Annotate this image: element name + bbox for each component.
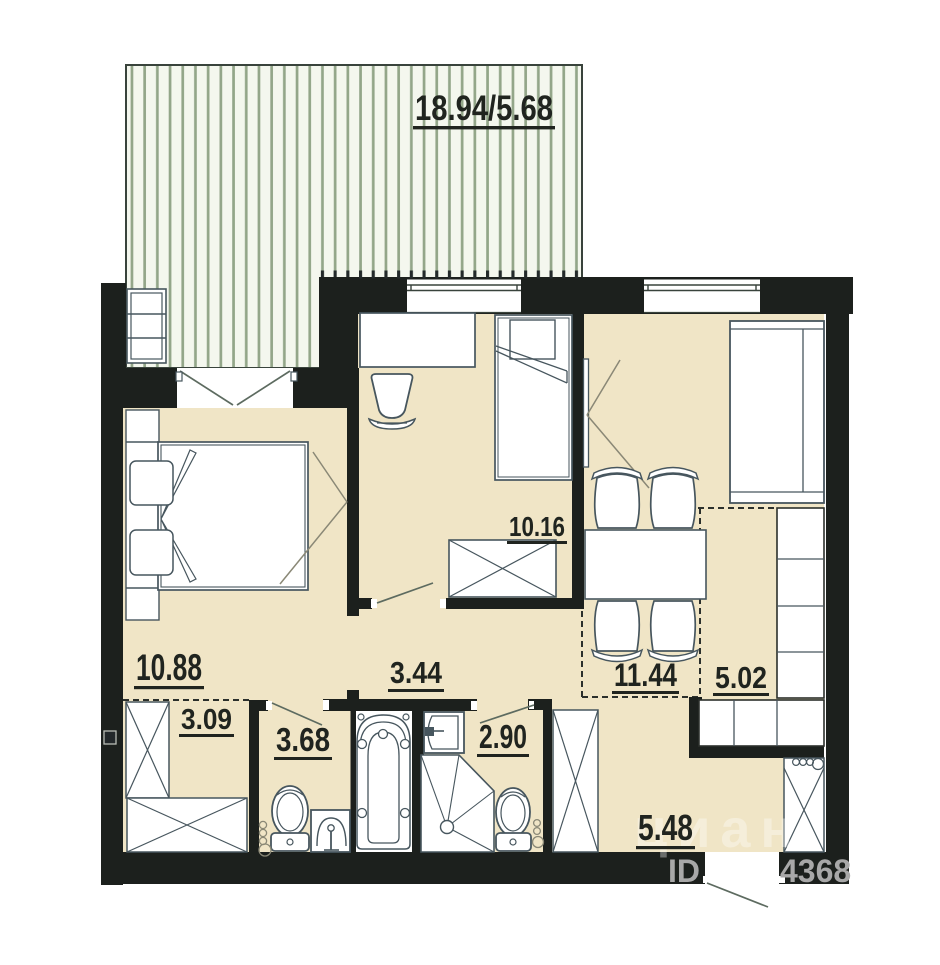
svg-text:10.16: 10.16 (509, 511, 565, 542)
svg-text:11.44: 11.44 (614, 657, 677, 693)
svg-text:2.90: 2.90 (479, 718, 527, 755)
svg-text:5.48: 5.48 (638, 807, 693, 848)
svg-text:4368: 4368 (780, 853, 851, 889)
svg-text:18.94/5.68: 18.94/5.68 (415, 89, 553, 128)
svg-text:ID: ID (668, 853, 700, 889)
svg-text:10.88: 10.88 (136, 647, 202, 688)
svg-text:3.44: 3.44 (390, 655, 443, 690)
svg-text:5.02: 5.02 (715, 660, 767, 695)
svg-text:3.09: 3.09 (181, 704, 232, 736)
svg-text:3.68: 3.68 (276, 721, 330, 758)
